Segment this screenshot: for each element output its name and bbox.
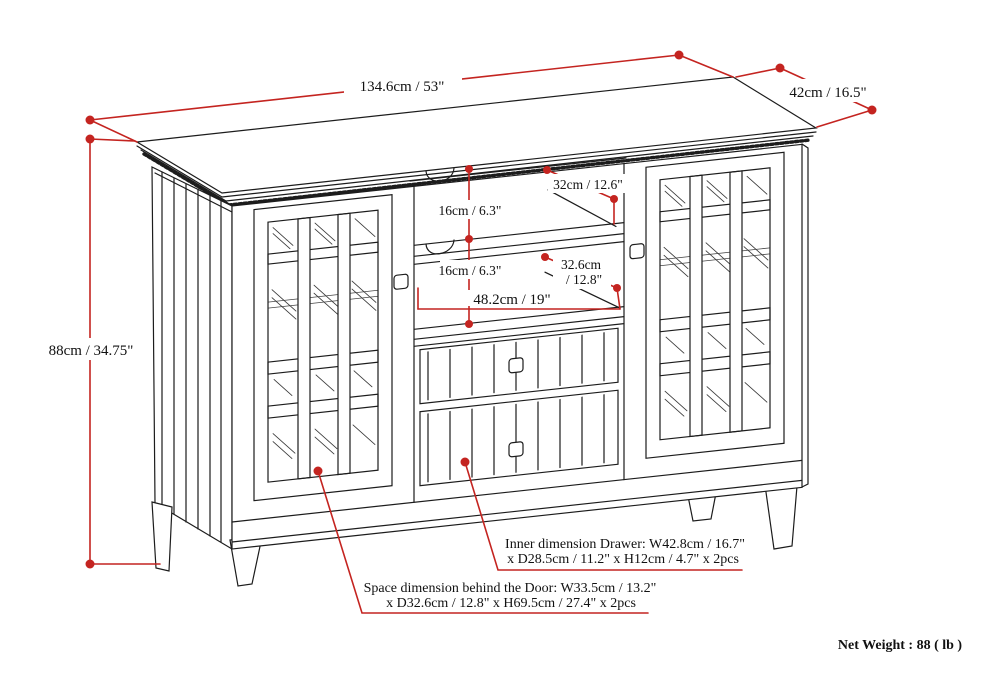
- drawer-note-line2: x D28.5cm / 11.2" x H12cm / 4.7" x 2pcs: [507, 552, 739, 567]
- top-shelf-depth-label: 32cm / 12.6": [553, 177, 623, 192]
- door-note-line2: x D32.6cm / 12.8" x H69.5cm / 27.4" x 2p…: [386, 596, 636, 611]
- left-door-knob: [394, 274, 408, 290]
- width-dimension-label: 134.6cm / 53": [360, 79, 445, 95]
- cabinet-front-face: [232, 144, 802, 549]
- height-dimension-label: 88cm / 34.75": [49, 343, 134, 359]
- top-shelf-height-label: 16cm / 6.3": [439, 203, 502, 218]
- bottom-shelf-depth-label-line2: / 12.8": [566, 272, 602, 287]
- bottom-shelf-height-label: 16cm / 6.3": [439, 263, 502, 278]
- net-weight-label: Net Weight : 88 ( lb ): [838, 638, 963, 653]
- drawer-note-line1: Inner dimension Drawer: W42.8cm / 16.7": [505, 537, 745, 552]
- right-side-panel: [802, 144, 808, 487]
- left-side-panel: [152, 167, 232, 549]
- cabinet-line-drawing: [137, 77, 816, 586]
- depth-dimension-label: 42cm / 16.5": [789, 85, 866, 101]
- bottom-shelf-depth-label-line1: 32.6cm: [561, 257, 602, 272]
- center-width-label: 48.2cm / 19": [473, 292, 550, 308]
- door-note-line1: Space dimension behind the Door: W33.5cm…: [364, 581, 657, 596]
- top-drawer-knob: [509, 358, 523, 374]
- right-door-knob: [630, 243, 644, 259]
- bottom-drawer-knob: [509, 442, 523, 458]
- cabinet-dimension-diagram: 134.6cm / 53" 42cm / 16.5" 88cm / 34.75"…: [0, 0, 1000, 678]
- dimension-diagram-page: 134.6cm / 53" 42cm / 16.5" 88cm / 34.75"…: [0, 0, 1000, 678]
- rear-left-leg: [152, 502, 172, 571]
